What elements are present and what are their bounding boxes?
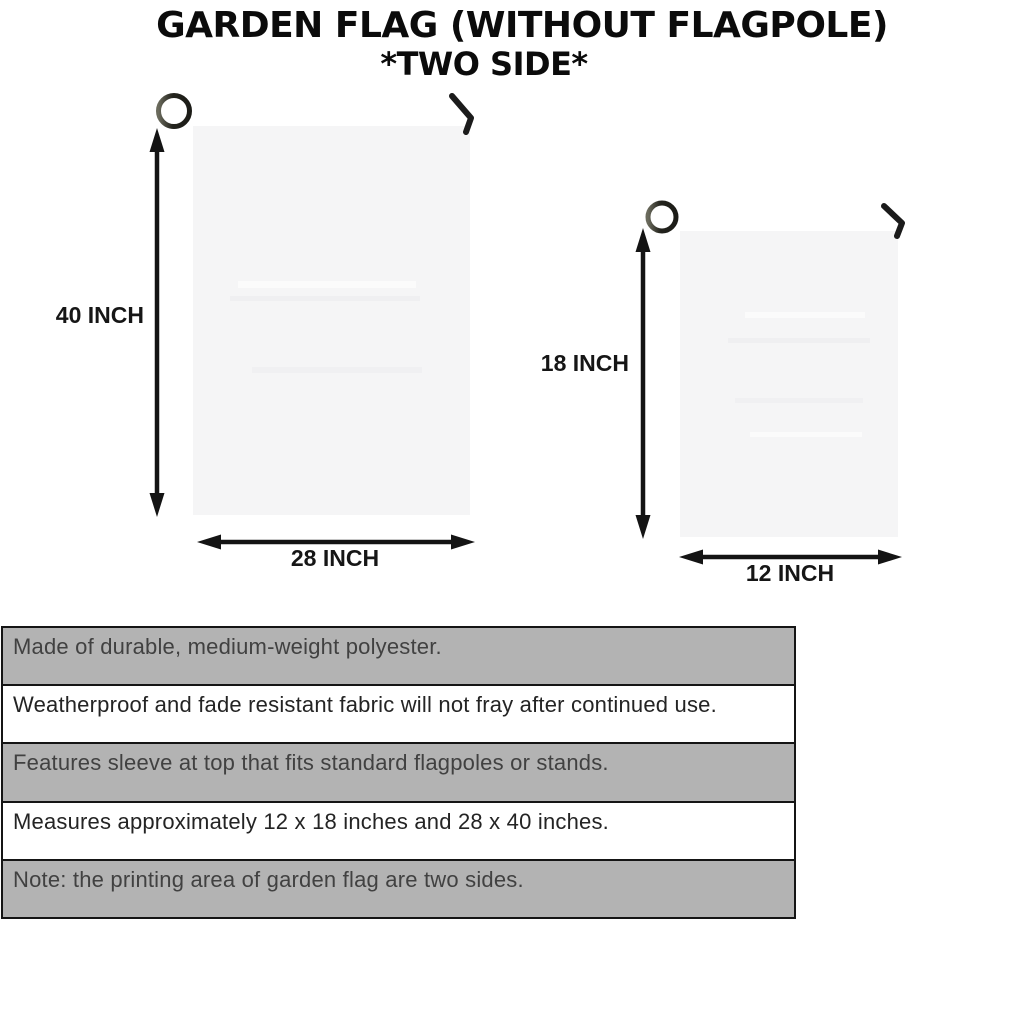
large-flag-canvas [193,126,470,515]
small-flag-height-label: 18 INCH [519,351,629,376]
spec-row-note: Note: the printing area of garden flag a… [3,861,794,917]
small-flag-width-label: 12 INCH [698,561,882,586]
large-flag-height-label: 40 INCH [44,303,144,328]
small-height-arrow [636,228,651,539]
spec-row-sleeve: Features sleeve at top that fits standar… [3,744,794,802]
large-flagpole-loop [159,96,190,127]
small-flag-figure [636,203,903,620]
product-infographic: GARDEN FLAG (WITHOUT FLAGPOLE) *TWO SIDE… [0,0,1024,1024]
small-flag-canvas [680,231,898,537]
large-flag-width-label: 28 INCH [243,546,427,571]
spec-row-measures: Measures approximately 12 x 18 inches an… [3,803,794,861]
large-height-arrow [150,128,165,517]
large-flag-figure [150,96,476,619]
spec-row-weatherproof: Weatherproof and fade resistant fabric w… [3,686,794,744]
spec-table: Made of durable, medium-weight polyester… [1,626,796,919]
small-flagpole-loop [648,203,676,231]
flag-diagrams [0,0,1024,630]
spec-row-material: Made of durable, medium-weight polyester… [3,628,794,686]
